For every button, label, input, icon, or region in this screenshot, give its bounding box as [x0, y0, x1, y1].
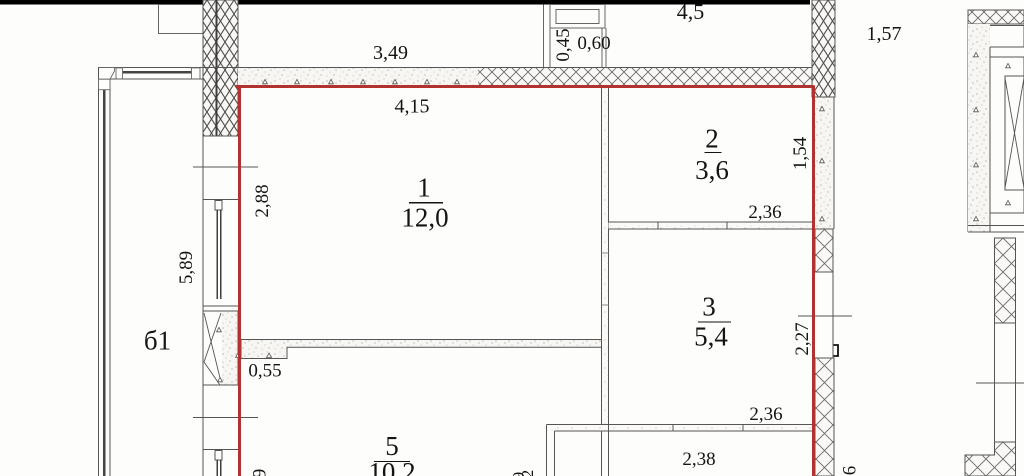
svg-text:9: 9: [250, 469, 271, 476]
svg-text:2,36: 2,36: [748, 202, 781, 223]
svg-text:1,54: 1,54: [790, 136, 811, 170]
svg-text:10,2: 10,2: [368, 457, 415, 476]
svg-text:0,60: 0,60: [577, 33, 610, 54]
svg-text:3: 3: [702, 292, 716, 322]
svg-text:0,45: 0,45: [553, 28, 574, 61]
svg-text:2: 2: [705, 124, 719, 154]
svg-text:1,57: 1,57: [867, 23, 902, 45]
svg-text:9: 9: [509, 472, 528, 476]
svg-text:0,55: 0,55: [248, 361, 281, 382]
svg-text:2,27: 2,27: [792, 322, 813, 355]
svg-text:3,6: 3,6: [695, 155, 729, 185]
svg-text:1: 1: [417, 173, 431, 203]
svg-text:12,0: 12,0: [401, 203, 448, 233]
svg-text:б1: б1: [144, 326, 171, 356]
svg-text:2,36: 2,36: [749, 404, 782, 425]
svg-text:6: 6: [840, 466, 861, 476]
svg-text:4,5: 4,5: [677, 0, 705, 24]
svg-text:5,89: 5,89: [176, 251, 197, 284]
svg-text:5,4: 5,4: [694, 322, 728, 352]
svg-text:4,15: 4,15: [395, 96, 430, 118]
svg-text:3,49: 3,49: [373, 42, 408, 64]
svg-text:2,88: 2,88: [252, 184, 273, 217]
svg-text:2,38: 2,38: [682, 449, 715, 470]
